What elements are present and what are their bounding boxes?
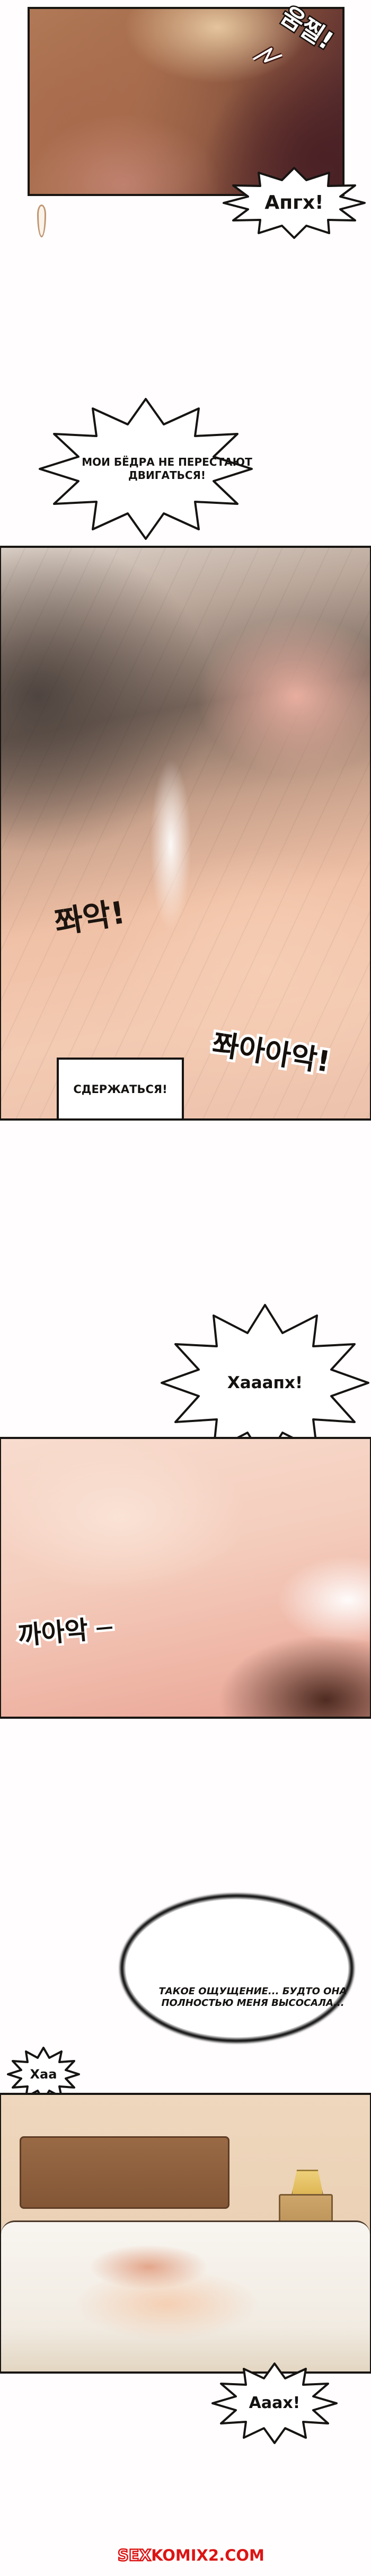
speech-bubble-gasp1: Апгх! <box>223 167 366 238</box>
speech-bubble-hips: МОИ БЁДРА НЕ ПЕРЕСТАЮТ ДВИГАТЬСЯ! <box>37 397 254 540</box>
panel-4-artwork <box>0 2093 371 2374</box>
speech-line-1: МОИ БЁДРА НЕ ПЕРЕСТАЮТ <box>82 456 252 469</box>
sfx-flinch: 움찔! <box>260 0 371 90</box>
speech-text: Апгх! <box>223 167 366 238</box>
sfx-squeeze-text: 까아악 ─ <box>17 1613 114 1650</box>
bed <box>1 2220 370 2371</box>
sweat-drop <box>37 205 46 237</box>
thought-line-1: ТАКОЕ ОЩУЩЕНИЕ... БУДТО ОНА <box>159 1986 347 1998</box>
watermark-suffix: KOMIX2.COM <box>151 2546 264 2564</box>
sfx-slap-text: 쫘악! <box>52 894 127 941</box>
speech-line-2: ДВИГАТЬСЯ! <box>128 469 206 482</box>
sfx-slap-long: 쫘아아악! <box>209 1021 371 1096</box>
comic-page: 움찔! Апгх! МОИ БЁДРА НЕ ПЕРЕСТАЮТ ДВИГАТЬ… <box>0 0 371 2576</box>
caption-restrain: СДЕРЖАТЬСЯ! <box>57 1058 184 1121</box>
sfx-slap: 쫘악! <box>50 882 162 951</box>
speech-text: Ааах! <box>211 2362 338 2444</box>
speech-text: МОИ БЁДРА НЕ ПЕРЕСТАЮТ ДВИГАТЬСЯ! <box>37 397 297 540</box>
sfx-flinch-text: 움찔! <box>276 1 339 55</box>
thought-line-2: ПОЛНОСТЬЮ МЕНЯ ВЫСОСАЛА... <box>161 1997 344 2010</box>
watermark-prefix: SEX <box>118 2546 151 2564</box>
thought-text: ТАКОЕ ОЩУЩЕНИЕ... БУДТО ОНА ПОЛНОСТЬЮ МЕ… <box>118 1891 371 2074</box>
speech-bubble-gasp3: Ааах! <box>211 2362 338 2444</box>
headboard <box>20 2136 229 2209</box>
thought-bubble: ТАКОЕ ОЩУЩЕНИЕ... БУДТО ОНА ПОЛНОСТЬЮ МЕ… <box>118 1891 356 2045</box>
site-watermark: SEXKOMIX2.COM <box>118 2546 264 2564</box>
panel-3-artwork <box>0 1437 371 1719</box>
caption-text: СДЕРЖАТЬСЯ! <box>73 1083 167 1096</box>
sfx-slap-long-text: 쫘아아악! <box>210 1027 332 1079</box>
sfx-squeeze: 까아악 ─ <box>15 1601 142 1665</box>
lamp-shade <box>291 2170 324 2197</box>
